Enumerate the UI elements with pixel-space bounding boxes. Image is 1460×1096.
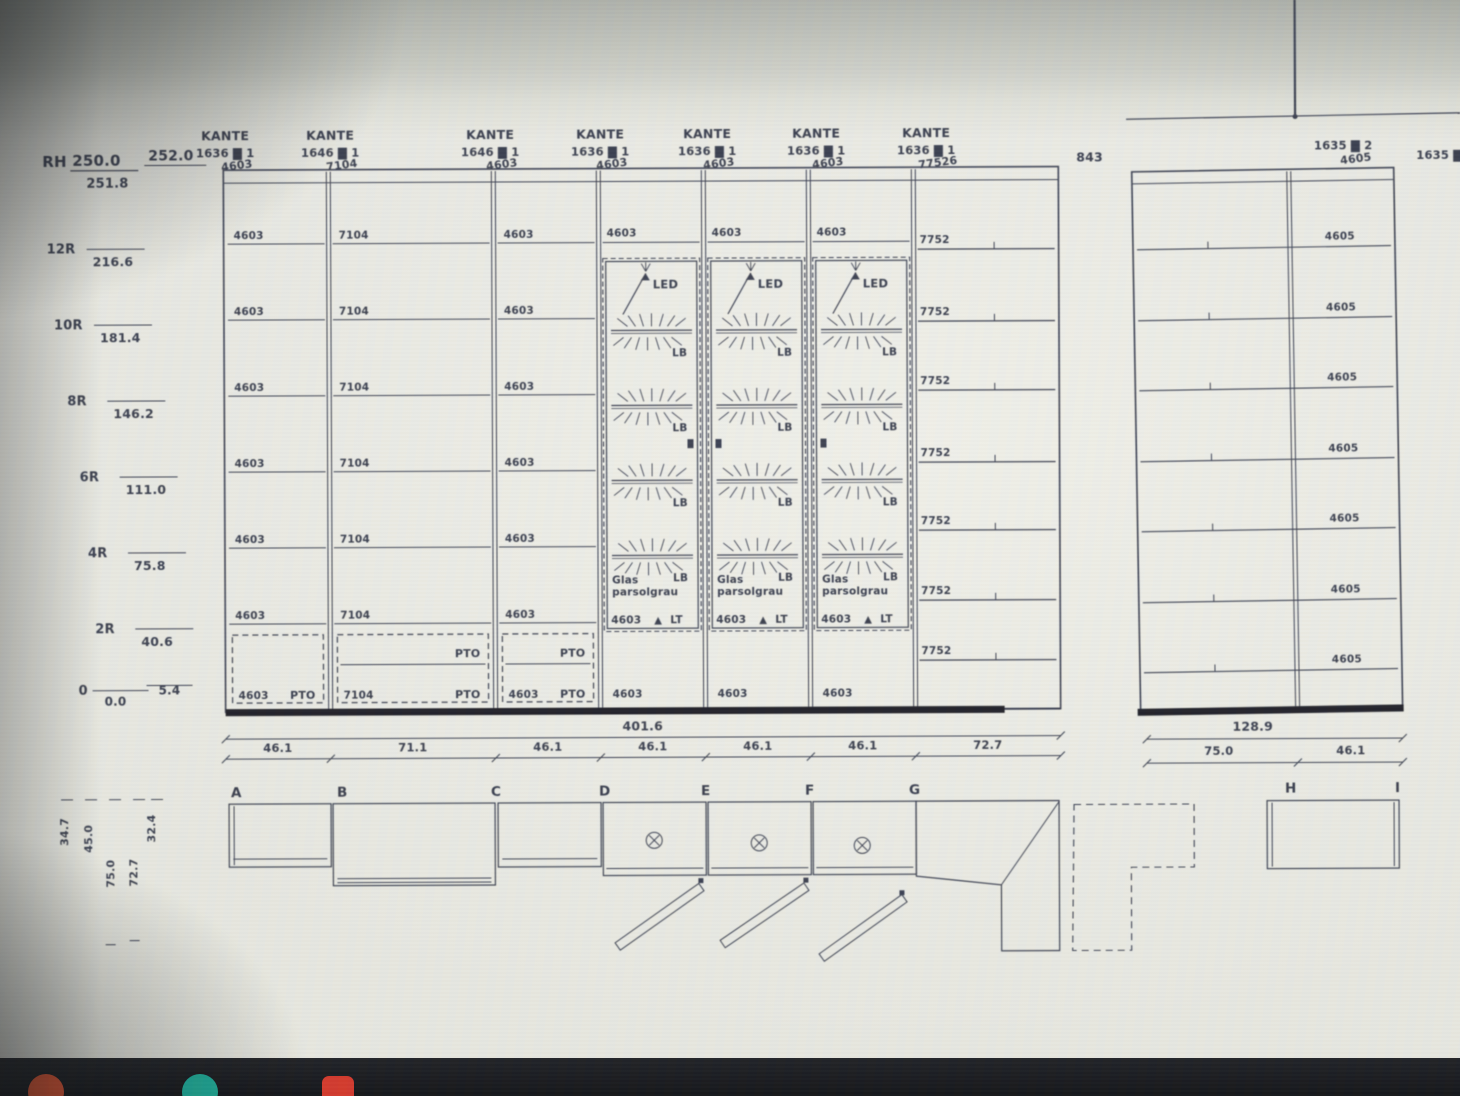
kante-title: KANTE — [466, 127, 514, 142]
shelf-light-rays — [668, 541, 675, 552]
shelf-light-rays — [877, 315, 884, 326]
scale-row-value: 146.2 — [113, 406, 154, 421]
shelf-light-rays — [660, 464, 664, 476]
door-bottom-triangle-icon: ▲ — [864, 614, 872, 625]
shelf-light-rays — [660, 539, 664, 551]
shelf-light-rays — [765, 538, 769, 550]
total-dim-label: 401.6 — [622, 718, 663, 733]
shelf-light-rays — [778, 562, 788, 570]
shelf-light-label: LB — [883, 571, 898, 583]
shelf-light-rays — [673, 562, 683, 570]
shelf-light-rays — [672, 412, 682, 420]
section-letter: H — [1285, 781, 1297, 797]
shelf-code-label: 4603 — [234, 382, 264, 394]
shelf-light-rays — [672, 337, 682, 345]
kante-code: 7104 — [325, 157, 358, 174]
scale-row-name: 8R — [67, 394, 87, 409]
shelf-code-label: 7104 — [339, 306, 369, 318]
shelf-light-label: LB — [777, 422, 792, 434]
glass-type-label: parsolgrau — [612, 586, 678, 598]
shelf-line — [1141, 458, 1395, 462]
shelf-light-rays — [668, 466, 675, 477]
shelf-light-rays — [883, 561, 893, 569]
segment-dim-label: 46.1 — [1336, 743, 1365, 757]
plan-inner-line — [337, 882, 491, 883]
shelf-light-rays — [835, 412, 842, 423]
shelf-light-rays — [640, 314, 644, 326]
partition-line — [495, 171, 497, 709]
shelf-line — [918, 321, 1055, 322]
shelf-light-rays — [719, 412, 729, 420]
segment-dim-label: 46.1 — [533, 740, 562, 754]
shelf-light-rays — [866, 336, 870, 348]
shelf-light-rays — [828, 392, 838, 400]
base-cell-code: 4603 — [613, 688, 643, 700]
shelf-light-rays — [885, 317, 895, 325]
door-bottom-code: 4603 — [716, 614, 746, 626]
partition-line — [1287, 171, 1296, 707]
shelf-code-label: 4603 — [234, 306, 264, 318]
wall-corner-joint — [1293, 114, 1298, 119]
section-letter: C — [491, 784, 501, 800]
shelf-code-label: 7104 — [339, 230, 369, 242]
shelf-light-rays — [733, 390, 740, 401]
shelf-light-rays — [770, 562, 777, 573]
shelf-light-rays — [664, 337, 671, 348]
scale-row-name: 6R — [80, 470, 100, 485]
scale-row-name: 10R — [54, 318, 83, 333]
pto-label: PTO — [560, 647, 586, 660]
glass-type-label: Glas — [822, 573, 848, 585]
shelf-light-label: LB — [778, 497, 793, 509]
section-letter: A — [231, 785, 242, 801]
kante-title: KANTE — [792, 126, 840, 141]
shelf-light-rays — [866, 411, 870, 423]
partition-line — [326, 172, 328, 710]
shelf-light-rays — [618, 468, 628, 476]
hinge-mark — [698, 878, 703, 883]
led-arrow-head — [851, 272, 860, 279]
shelf-code-label: 7752 — [920, 234, 950, 246]
shelf-light-rays — [765, 463, 769, 475]
shelf-light-label: LB — [672, 422, 687, 434]
plan-depth-label: 34.7 — [58, 818, 71, 846]
shelf-light-rays — [628, 316, 635, 327]
shelf-light-rays — [617, 318, 627, 326]
shelf-light-rays — [823, 337, 833, 345]
shelf-light-rays — [866, 486, 870, 498]
shelf-light-rays — [761, 337, 765, 349]
shelf-light-rays — [657, 562, 661, 574]
segment-dim-line — [226, 756, 1061, 760]
shelf-light-rays — [656, 337, 660, 349]
plinth-base-heavy — [1138, 704, 1404, 715]
door-bottom-triangle-icon: ▲ — [759, 615, 767, 626]
shelf-light-rays — [723, 468, 733, 476]
door-handle — [820, 439, 826, 448]
shelf-light-rays — [882, 411, 892, 419]
shelf-light-rays — [741, 337, 745, 349]
shelf-code-label: 7752 — [921, 515, 951, 527]
shelf-light-rays — [839, 540, 846, 551]
kante-title: KANTE — [576, 126, 624, 141]
plan-section-a — [229, 804, 331, 867]
scale-row-name: 0 — [79, 684, 88, 699]
shelf-light-rays — [882, 336, 892, 344]
shelf-line — [1142, 528, 1396, 532]
door-bottom-code: 4603 — [611, 614, 641, 626]
shelf-light-rays — [851, 538, 855, 550]
led-arrow-head — [746, 273, 755, 280]
shelf-code-label: 4603 — [234, 230, 264, 242]
shelf-light-rays — [614, 487, 624, 495]
shelf-code-label: 4603 — [505, 533, 535, 545]
shelf-code-label: 4603 — [817, 226, 847, 238]
led-label: LED — [653, 277, 678, 291]
pto-label: PTO — [560, 688, 586, 701]
shelf-line — [919, 462, 1056, 463]
wall-dim-label: 843 — [1076, 149, 1103, 164]
shelf-code-label: 4603 — [505, 609, 535, 621]
led-rays — [646, 264, 651, 272]
segment-dim-label: 72.7 — [973, 738, 1002, 752]
shelf-light-label: LB — [673, 572, 688, 584]
kante-code: 4603 — [220, 157, 253, 174]
plinth-base-heavy — [226, 706, 1005, 716]
shelf-light-rays — [625, 487, 632, 498]
shelf-code-label: 7752 — [921, 645, 951, 657]
shelf-light-rays — [641, 539, 645, 551]
shelf-code-label: 4603 — [235, 534, 265, 546]
orange-app-icon[interactable] — [28, 1074, 64, 1096]
led-rays — [641, 264, 646, 272]
shelf-light-rays — [614, 562, 624, 570]
segment-dim-label: 46.1 — [638, 739, 667, 753]
door-bottom-tag: LT — [670, 614, 683, 626]
pto-divider — [340, 664, 485, 665]
pto-code: 7104 — [344, 690, 374, 702]
door-bottom-triangle-icon: ▲ — [654, 615, 662, 626]
shelf-line — [919, 530, 1056, 531]
shelf-light-rays — [745, 388, 749, 400]
kante-code: 4603 — [595, 156, 628, 173]
shelf-light-rays — [839, 465, 846, 476]
shelf-code-label: 4605 — [1329, 512, 1359, 524]
shelf-light-rays — [722, 318, 732, 326]
pto-label: PTO — [455, 647, 481, 660]
shelf-code-label: 7104 — [339, 382, 369, 394]
shelf-code-label: 7752 — [920, 375, 950, 387]
shelf-line — [1139, 387, 1393, 391]
shelf-light-rays — [665, 562, 672, 573]
shelf-code-label: 7752 — [920, 306, 950, 318]
shelf-code-label: 7104 — [340, 458, 370, 470]
shelf-line — [334, 547, 491, 548]
segment-dim-label: 71.1 — [398, 740, 427, 754]
shelf-light-rays — [765, 388, 769, 400]
shelf-light-rays — [741, 487, 745, 499]
room-height-lower: 251.8 — [86, 177, 128, 192]
shelf-line — [1143, 599, 1397, 603]
shelf-light-rays — [886, 542, 896, 550]
scale-row-value: 111.0 — [126, 482, 167, 497]
door-handle — [715, 439, 721, 448]
shelf-light-rays — [746, 538, 750, 550]
shelf-light-rays — [835, 487, 842, 498]
shelf-light-rays — [878, 390, 885, 401]
led-rays — [746, 263, 751, 271]
shelf-light-rays — [781, 468, 791, 476]
shelf-light-rays — [850, 388, 854, 400]
shelf-light-rays — [834, 337, 841, 348]
shelf-light-rays — [624, 337, 631, 348]
kante-title: KANTE — [306, 128, 354, 143]
shelf-line — [334, 471, 491, 472]
plan-corner-diagonal — [1001, 802, 1059, 885]
shelf-light-rays — [618, 543, 628, 551]
pto-code: 4603 — [509, 689, 539, 701]
plan-section-glass — [603, 802, 706, 875]
section-letter: F — [805, 783, 815, 799]
shelf-light-rays — [828, 542, 838, 550]
scale-row-value: 75.8 — [134, 558, 166, 573]
shelf-light-rays — [773, 465, 780, 476]
scale-row-name: 2R — [95, 622, 115, 637]
glass-type-label: parsolgrau — [822, 585, 888, 597]
shelf-light-rays — [827, 317, 837, 325]
partition-line — [810, 170, 812, 708]
shelf-light-rays — [824, 562, 834, 570]
shelf-light-rays — [764, 313, 768, 325]
base-cell-code: 4603 — [823, 687, 853, 699]
shelf-code-label: 7752 — [921, 447, 951, 459]
partition-line — [915, 169, 917, 707]
shelf-light-rays — [656, 412, 660, 424]
kante-title: KANTE — [902, 125, 950, 140]
shelf-code-label: 4603 — [504, 305, 534, 317]
main-unit-top-inner-line — [223, 180, 1058, 184]
glass-type-label: parsolgrau — [717, 586, 783, 598]
section-letter: G — [909, 782, 920, 798]
shelf-light-rays — [875, 561, 882, 572]
room-height-upper: 250.0 — [72, 152, 121, 170]
shelf-light-rays — [730, 562, 737, 573]
shelf-light-rays — [730, 487, 737, 498]
shelf-light-rays — [773, 390, 780, 401]
shelf-light-rays — [777, 337, 787, 345]
shelf-light-rays — [742, 562, 746, 574]
shelf-light-rays — [846, 411, 850, 423]
shelf-light-rays — [773, 540, 780, 551]
plan-depth-label: 32.4 — [145, 814, 158, 842]
plan-dashed-unit — [1072, 804, 1195, 951]
technical-drawing: 12R216.610R181.48R146.26R111.04R75.82R40… — [42, 0, 1460, 965]
shelf-light-rays — [659, 314, 663, 326]
plan-corner-unit — [916, 801, 1060, 952]
shelf-line — [333, 319, 490, 320]
shelf-light-label: LB — [882, 421, 897, 433]
shelf-light-rays — [734, 540, 741, 551]
shelf-code-label: 4605 — [1327, 371, 1357, 383]
scale-row-value: 216.6 — [93, 254, 134, 269]
shelf-line — [918, 390, 1055, 391]
shelf-light-rays — [870, 463, 874, 475]
door-leaf-open — [720, 883, 809, 948]
shelf-code-label: 4605 — [1328, 442, 1358, 454]
photo-of-screen: 12R216.610R181.48R146.26R111.04R75.82R40… — [0, 0, 1460, 1096]
shelf-light-rays — [781, 543, 791, 551]
segment-dim-label: 46.1 — [263, 741, 292, 755]
shelf-light-rays — [824, 487, 834, 495]
shelf-line — [334, 623, 491, 624]
shelf-light-rays — [874, 336, 881, 347]
shelf-light-rays — [781, 393, 791, 401]
shelf-light-label: LB — [777, 347, 792, 359]
shelf-light-rays — [761, 487, 765, 499]
ceiling-height-value: 252.0 — [148, 148, 193, 164]
shelf-light-rays — [838, 315, 845, 326]
shelf-light-rays — [745, 313, 749, 325]
shelf-light-rays — [870, 538, 874, 550]
right-unit-top-inner — [1132, 180, 1394, 184]
segment-dim-label: 46.1 — [743, 739, 772, 753]
shelf-light-rays — [660, 389, 664, 401]
scale-row-value: 40.6 — [141, 634, 173, 649]
shelf-light-label: LB — [672, 347, 687, 359]
shelf-line — [1144, 669, 1398, 673]
segment-dim-label: 46.1 — [848, 738, 877, 752]
shelf-light-rays — [625, 562, 632, 573]
shelf-line — [919, 660, 1056, 661]
hinge-mark — [803, 878, 808, 883]
shelf-light-rays — [614, 412, 624, 420]
scale-row-name: 12R — [47, 242, 76, 257]
shelf-light-rays — [762, 562, 766, 574]
partition-line — [1291, 171, 1300, 707]
shelf-light-rays — [628, 391, 635, 402]
scale-row-name: 4R — [88, 546, 108, 561]
shelf-line — [333, 243, 490, 244]
pto-code: 4603 — [239, 690, 269, 702]
door-bottom-tag: LT — [880, 613, 893, 625]
shelf-light-rays — [869, 313, 873, 325]
shelf-light-rays — [769, 337, 776, 348]
led-rays — [751, 263, 756, 271]
shelf-light-rays — [835, 562, 842, 573]
shelf-light-rays — [668, 391, 675, 402]
right-total-dim-line — [1147, 738, 1403, 739]
taskbar — [0, 1058, 1460, 1096]
kante-title: KANTE — [683, 126, 731, 141]
shelf-light-label: LB — [883, 496, 898, 508]
shelf-light-rays — [777, 412, 787, 420]
teal-app-icon[interactable] — [182, 1074, 218, 1096]
shelf-light-rays — [640, 389, 644, 401]
shelf-line — [1138, 317, 1392, 321]
shelf-light-rays — [636, 412, 640, 424]
shelf-light-rays — [824, 412, 834, 420]
shelf-light-rays — [828, 467, 838, 475]
shelf-light-rays — [718, 337, 728, 345]
shelf-light-rays — [667, 316, 674, 327]
red-app-icon[interactable] — [322, 1076, 354, 1096]
pto-label: PTO — [290, 689, 316, 702]
kante-code: 4603 — [702, 155, 735, 172]
led-rays — [856, 263, 861, 271]
segment-dim-label: 75.0 — [1204, 744, 1233, 758]
shelf-code-label: 4605 — [1326, 301, 1356, 313]
right-total-dim-label: 128.9 — [1232, 719, 1273, 734]
shelf-code-label: 4603 — [505, 457, 535, 469]
shelf-light-rays — [850, 463, 854, 475]
plan-depth-label: 45.0 — [82, 825, 95, 853]
shelf-light-rays — [882, 486, 892, 494]
shelf-code-label: 4605 — [1325, 230, 1355, 242]
shelf-light-rays — [878, 540, 885, 551]
door-leaf-open — [819, 895, 908, 962]
led-label: LED — [863, 276, 888, 290]
shelf-light-rays — [741, 412, 745, 424]
kante-title: KANTE — [201, 128, 249, 143]
shelf-light-rays — [874, 411, 881, 422]
shelf-light-rays — [745, 463, 749, 475]
shelf-light-rays — [846, 486, 850, 498]
right-unit-code: 4605 — [1339, 150, 1372, 167]
shelf-light-rays — [761, 412, 765, 424]
shelf-light-rays — [777, 487, 787, 495]
scale-row-value: 181.4 — [100, 330, 141, 345]
plan-inner-line — [337, 878, 491, 879]
partition-line — [596, 171, 598, 709]
shelf-light-rays — [838, 390, 845, 401]
section-letter: D — [599, 784, 610, 800]
kante-code: 4603 — [485, 156, 518, 173]
pto-label: PTO — [455, 688, 481, 701]
plan-depth-label: 75.0 — [104, 860, 117, 888]
led-rays — [851, 263, 856, 271]
shelf-light-rays — [769, 412, 776, 423]
main-unit-frame — [223, 167, 1060, 713]
shelf-code-label: 4603 — [235, 610, 265, 622]
shelf-light-rays — [629, 541, 636, 552]
shelf-line — [919, 600, 1056, 601]
shelf-light-rays — [656, 487, 660, 499]
room-height-label: RH — [42, 153, 67, 171]
shelf-light-rays — [672, 487, 682, 495]
shelf-light-rays — [878, 465, 885, 476]
shelf-light-rays — [636, 487, 640, 499]
shelf-light-rays — [867, 561, 871, 573]
shelf-line — [918, 249, 1055, 250]
shelf-light-rays — [772, 315, 779, 326]
shelf-light-rays — [850, 313, 854, 325]
shelf-light-rays — [886, 467, 896, 475]
led-arrow-head — [641, 273, 650, 280]
shelf-light-rays — [723, 543, 733, 551]
kante-code: 4603 — [811, 155, 844, 172]
shelf-light-rays — [625, 412, 632, 423]
shelf-light-rays — [719, 487, 729, 495]
glass-type-label: Glas — [717, 574, 743, 586]
shelf-light-rays — [780, 318, 790, 326]
glass-type-label: Glas — [612, 574, 638, 586]
section-letter: B — [337, 785, 348, 801]
shelf-code-label: 4603 — [235, 458, 265, 470]
shelf-light-rays — [676, 393, 686, 401]
door-bottom-tag: LT — [775, 614, 788, 626]
partition-line — [330, 172, 332, 710]
shelf-light-rays — [636, 337, 640, 349]
